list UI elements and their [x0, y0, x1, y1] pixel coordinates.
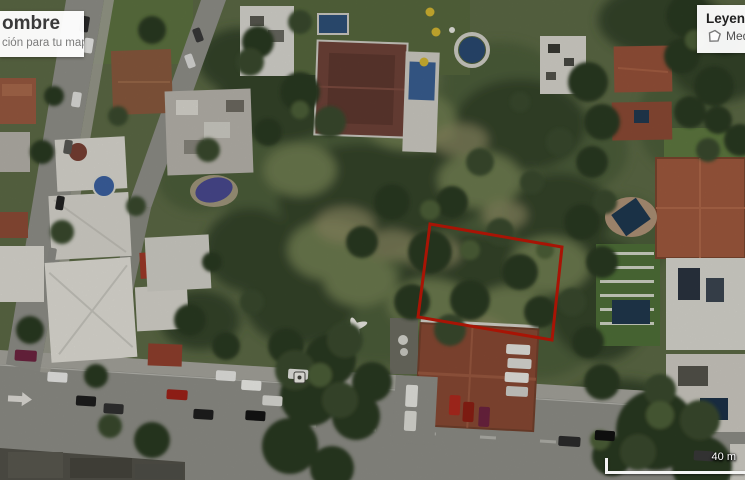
polygon-icon — [706, 29, 722, 43]
scale-label: 40 m — [712, 451, 736, 463]
map-canvas[interactable]: ombre ción para tu mapa. Leyenda Medic 4… — [0, 0, 745, 480]
map-description: ción para tu mapa. — [2, 37, 80, 49]
map-title: ombre — [2, 13, 80, 35]
scale-bar: 40 m — [605, 458, 745, 474]
map-title-card[interactable]: ombre ción para tu mapa. — [0, 11, 84, 57]
legend-item-label: Medic — [726, 29, 745, 43]
image-noise — [0, 0, 745, 480]
legend-item-medicion[interactable]: Medic — [706, 29, 745, 43]
legend-panel: Leyenda Medic — [697, 5, 745, 53]
satellite-imagery — [0, 0, 745, 480]
legend-title: Leyenda — [706, 11, 745, 26]
